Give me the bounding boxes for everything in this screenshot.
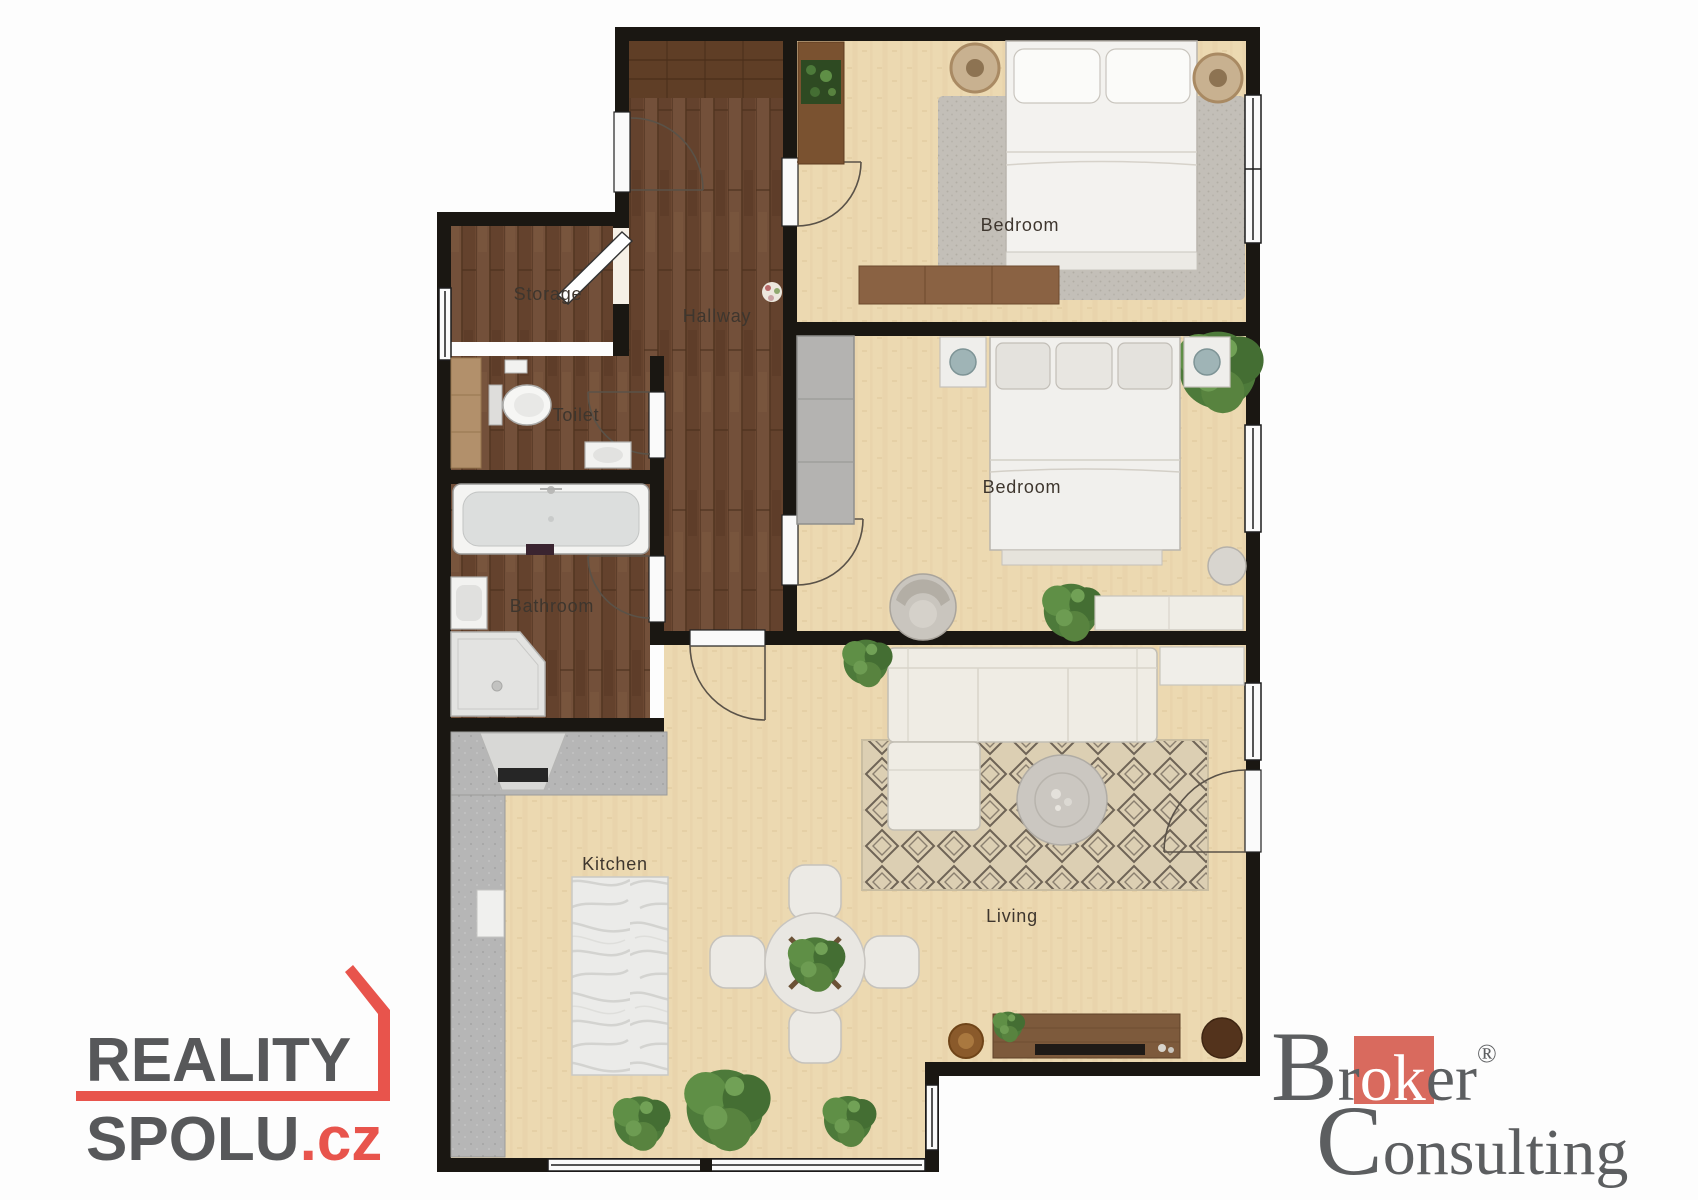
reality-spolu-line2: SPOLU.cz bbox=[86, 1105, 382, 1174]
side-console bbox=[1160, 647, 1244, 685]
dining-chair-bottom bbox=[789, 1008, 841, 1063]
kitchen-island bbox=[572, 877, 668, 1075]
nightstand-lamp-left bbox=[951, 44, 999, 92]
step-window bbox=[926, 1085, 938, 1150]
counter-left-run bbox=[451, 795, 505, 1157]
wardrobe bbox=[797, 336, 854, 524]
bathroom-sink bbox=[451, 577, 487, 629]
plant-box bbox=[801, 60, 841, 104]
bedroom-top-window bbox=[1245, 95, 1261, 243]
counter-cabinet bbox=[477, 890, 504, 937]
toilet-cistern bbox=[505, 360, 527, 373]
broker-consulting-word1: Broker® bbox=[1271, 1011, 1497, 1122]
room-label-bathroom: Bathroom bbox=[510, 596, 594, 616]
side-table-round bbox=[1208, 547, 1246, 585]
room-label-bedroom-top: Bedroom bbox=[981, 215, 1060, 235]
nightstand-deco-right bbox=[1194, 349, 1220, 375]
broker-consulting-logo: Broker® Consulting bbox=[1271, 1011, 1628, 1196]
room-label-living: Living bbox=[986, 906, 1038, 926]
room-label-toilet: Toilet bbox=[553, 405, 600, 425]
registered-mark-icon: ® bbox=[1477, 1039, 1497, 1068]
tv-screen bbox=[1035, 1044, 1145, 1055]
double-bed bbox=[1006, 41, 1197, 270]
pouf-dark bbox=[1202, 1018, 1242, 1058]
reality-spolu-line1: REALITY bbox=[86, 1026, 351, 1095]
bathtub bbox=[453, 484, 649, 555]
living-side-window bbox=[1245, 683, 1261, 760]
room-label-bedroom-middle: Bedroom bbox=[983, 477, 1062, 497]
room-label-storage: Storage bbox=[514, 284, 583, 304]
reality-spolu-logo: REALITY SPOLU.cz bbox=[76, 965, 390, 1174]
corner-shower bbox=[451, 632, 545, 716]
nightstand-lamp-right bbox=[1194, 54, 1242, 102]
kitchen-bottom-window bbox=[548, 1158, 925, 1172]
dresser bbox=[859, 266, 1059, 304]
toilet-cabinet bbox=[451, 358, 481, 468]
storage-side-window bbox=[439, 288, 451, 360]
toilet-sink-small bbox=[585, 442, 631, 468]
flower-deco bbox=[762, 282, 782, 302]
floorplan-canvas: Storage Hallway Toilet Bathroom Bedroom … bbox=[0, 0, 1698, 1200]
nightstand-deco-left bbox=[950, 349, 976, 375]
floorplan-image: Storage Hallway Toilet Bathroom Bedroom … bbox=[0, 0, 1698, 1200]
hallway-closet bbox=[629, 41, 783, 98]
toilet-wc bbox=[489, 385, 551, 425]
room-label-kitchen: Kitchen bbox=[582, 854, 648, 874]
bench bbox=[1095, 596, 1243, 630]
dining-chair-right bbox=[864, 936, 919, 988]
coffee-table bbox=[1017, 755, 1107, 845]
room-label-hallway: Hallway bbox=[683, 306, 752, 326]
tv-sideboard bbox=[993, 1012, 1180, 1058]
double-bed bbox=[990, 337, 1180, 565]
stool-round bbox=[949, 1024, 983, 1058]
dining-chair-top bbox=[789, 865, 841, 920]
armchair bbox=[890, 574, 956, 640]
dining-chair-left bbox=[710, 936, 765, 988]
bedroom-middle-window bbox=[1245, 425, 1261, 532]
